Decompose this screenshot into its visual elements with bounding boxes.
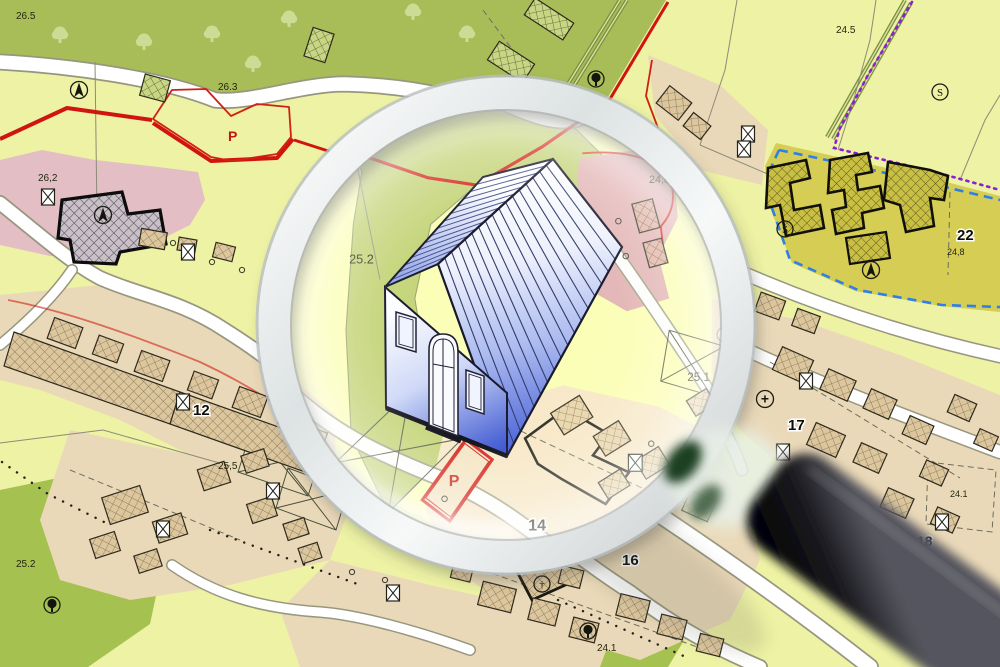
parcel-label: 24.1 bbox=[950, 489, 968, 499]
hatched-building bbox=[139, 228, 168, 249]
parcel-label: 24,8 bbox=[947, 247, 965, 257]
parcel-label: P bbox=[228, 128, 237, 144]
parcel-label: 12 bbox=[193, 402, 210, 419]
parcel-label: 24.1 bbox=[597, 643, 617, 654]
svg-text:S: S bbox=[782, 224, 788, 236]
parcel-label: 26,2 bbox=[38, 173, 58, 184]
svg-text:+: + bbox=[761, 391, 769, 407]
survey-square-marker bbox=[800, 373, 813, 389]
screenshot-root: Cadastral town plan map seen through a l… bbox=[0, 0, 1000, 667]
cadastral-map-scene: Cadastral town plan map seen through a l… bbox=[0, 0, 1000, 667]
svg-text:S: S bbox=[937, 87, 943, 99]
survey-square-marker bbox=[157, 521, 170, 537]
survey-square-marker bbox=[42, 189, 55, 205]
yellow-zone-building-4 bbox=[846, 232, 890, 264]
survey-square-marker bbox=[936, 514, 949, 530]
survey-square-marker bbox=[387, 585, 400, 601]
parcel-label: 25.2 bbox=[16, 559, 36, 570]
parcel-label: 26.3 bbox=[218, 82, 238, 93]
parcel-label: 22 bbox=[957, 227, 974, 244]
parcel-label: 24.5 bbox=[836, 25, 856, 36]
svg-text:†: † bbox=[539, 579, 545, 591]
parcel-label: 26.5 bbox=[16, 11, 36, 22]
survey-square-marker bbox=[742, 126, 755, 142]
survey-square-marker bbox=[177, 394, 190, 410]
parcel-label: 17 bbox=[788, 417, 805, 434]
survey-square-marker bbox=[267, 483, 280, 499]
survey-square-marker bbox=[182, 244, 195, 260]
parcel-label: 25,5 bbox=[218, 461, 238, 472]
survey-square-marker bbox=[738, 141, 751, 157]
